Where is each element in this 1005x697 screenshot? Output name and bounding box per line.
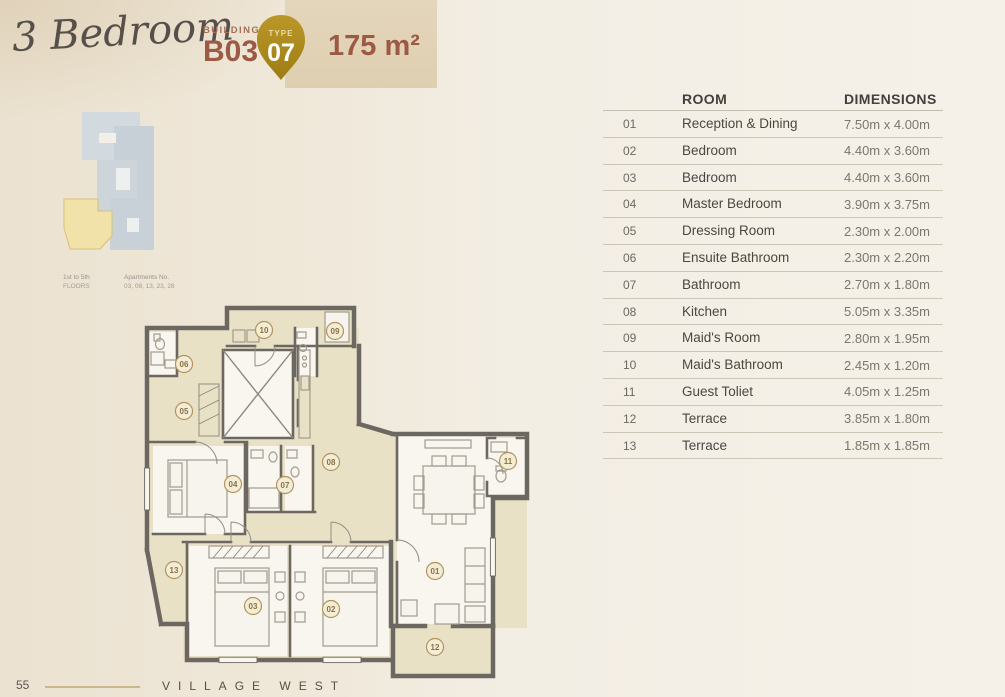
table-row: 05 Dressing Room 2.30m x 2.00m (603, 218, 943, 245)
row-num: 09 (623, 331, 636, 345)
table-row: 01 Reception & Dining 7.50m x 4.00m (603, 111, 943, 138)
table-row: 07 Bathroom 2.70m x 1.80m (603, 272, 943, 299)
row-room: Dressing Room (682, 223, 775, 238)
row-dim: 7.50m x 4.00m (844, 117, 930, 132)
row-room: Bathroom (682, 277, 741, 292)
row-dim: 3.85m x 1.80m (844, 411, 930, 426)
room-table-body: 01 Reception & Dining 7.50m x 4.00m 02 B… (603, 111, 943, 459)
row-dim: 2.80m x 1.95m (844, 331, 930, 346)
row-room: Bedroom (682, 143, 737, 158)
room-number-text: 03 (249, 602, 258, 611)
row-dim: 2.30m x 2.20m (844, 250, 930, 265)
row-dim: 4.40m x 3.60m (844, 170, 930, 185)
room-number-text: 09 (331, 327, 340, 336)
row-dim: 5.05m x 3.35m (844, 304, 930, 319)
room-number-text: 08 (327, 458, 336, 467)
row-room: Master Bedroom (682, 196, 782, 211)
row-num: 06 (623, 251, 636, 265)
row-num: 11 (623, 385, 635, 399)
row-dim: 3.90m x 3.75m (844, 197, 930, 212)
room-number-text: 05 (180, 407, 189, 416)
room-number-text: 13 (170, 566, 179, 575)
table-row: 06 Ensuite Bathroom 2.30m x 2.20m (603, 245, 943, 272)
row-room: Reception & Dining (682, 116, 798, 131)
table-row: 04 Master Bedroom 3.90m x 3.75m (603, 191, 943, 218)
area-value: 175 m² (328, 30, 420, 63)
row-num: 02 (623, 144, 636, 158)
room-number-text: 10 (260, 326, 269, 335)
row-room: Bedroom (682, 170, 737, 185)
row-dim: 2.70m x 1.80m (844, 277, 930, 292)
footer-brand: VILLAGE WEST (162, 679, 346, 693)
row-num: 04 (623, 197, 636, 211)
header-dimensions: DIMENSIONS (844, 91, 937, 107)
row-num: 01 (623, 117, 636, 131)
footer-page-number: 55 (16, 678, 29, 692)
type-label: TYPE (269, 29, 294, 38)
room-number-text: 11 (504, 457, 513, 466)
row-num: 12 (623, 412, 636, 426)
row-room: Terrace (682, 411, 727, 426)
keyplan-floors-caption: 1st to 5th FLOORS (63, 273, 90, 291)
room-number-text: 01 (431, 567, 440, 576)
room-table-header: ROOM DIMENSIONS (603, 88, 943, 111)
row-dim: 2.30m x 2.00m (844, 224, 930, 239)
row-dim: 1.85m x 1.85m (844, 438, 930, 453)
row-room: Maid's Room (682, 330, 760, 345)
table-row: 13 Terrace 1.85m x 1.85m (603, 433, 943, 460)
keyplan (52, 106, 187, 266)
building-value: B03 (203, 37, 260, 67)
type-value: 07 (267, 39, 295, 67)
row-dim: 4.40m x 3.60m (844, 143, 930, 158)
table-row: 11 Guest Toliet 4.05m x 1.25m (603, 379, 943, 406)
floorplan: 10090605080407110113030212 (135, 300, 535, 682)
room-number-text: 04 (229, 480, 238, 489)
row-num: 07 (623, 278, 636, 292)
table-row: 08 Kitchen 5.05m x 3.35m (603, 299, 943, 326)
row-num: 10 (623, 358, 636, 372)
room-number-text: 02 (327, 605, 336, 614)
footer-divider (45, 686, 140, 688)
table-row: 12 Terrace 3.85m x 1.80m (603, 406, 943, 433)
row-room: Kitchen (682, 304, 727, 319)
row-num: 08 (623, 305, 636, 319)
room-number-text: 07 (281, 481, 290, 490)
table-row: 02 Bedroom 4.40m x 3.60m (603, 138, 943, 165)
type-badge: TYPE 07 (255, 14, 307, 82)
header-room: ROOM (682, 91, 727, 107)
room-number-text: 06 (180, 360, 189, 369)
keyplan-apartments-caption: Apartments No. 03, 08, 13, 23, 28 (124, 273, 175, 291)
row-dim: 2.45m x 1.20m (844, 358, 930, 373)
row-room: Maid's Bathroom (682, 357, 783, 372)
row-dim: 4.05m x 1.25m (844, 384, 930, 399)
row-room: Terrace (682, 438, 727, 453)
row-num: 03 (623, 171, 636, 185)
room-table: ROOM DIMENSIONS 01 Reception & Dining 7.… (603, 88, 943, 459)
table-row: 03 Bedroom 4.40m x 3.60m (603, 165, 943, 192)
table-row: 10 Maid's Bathroom 2.45m x 1.20m (603, 352, 943, 379)
row-room: Guest Toliet (682, 384, 753, 399)
building-block: BUILDING B03 (203, 25, 260, 67)
room-number-text: 12 (431, 643, 440, 652)
row-num: 05 (623, 224, 636, 238)
row-num: 13 (623, 439, 636, 453)
table-row: 09 Maid's Room 2.80m x 1.95m (603, 325, 943, 352)
row-room: Ensuite Bathroom (682, 250, 789, 265)
